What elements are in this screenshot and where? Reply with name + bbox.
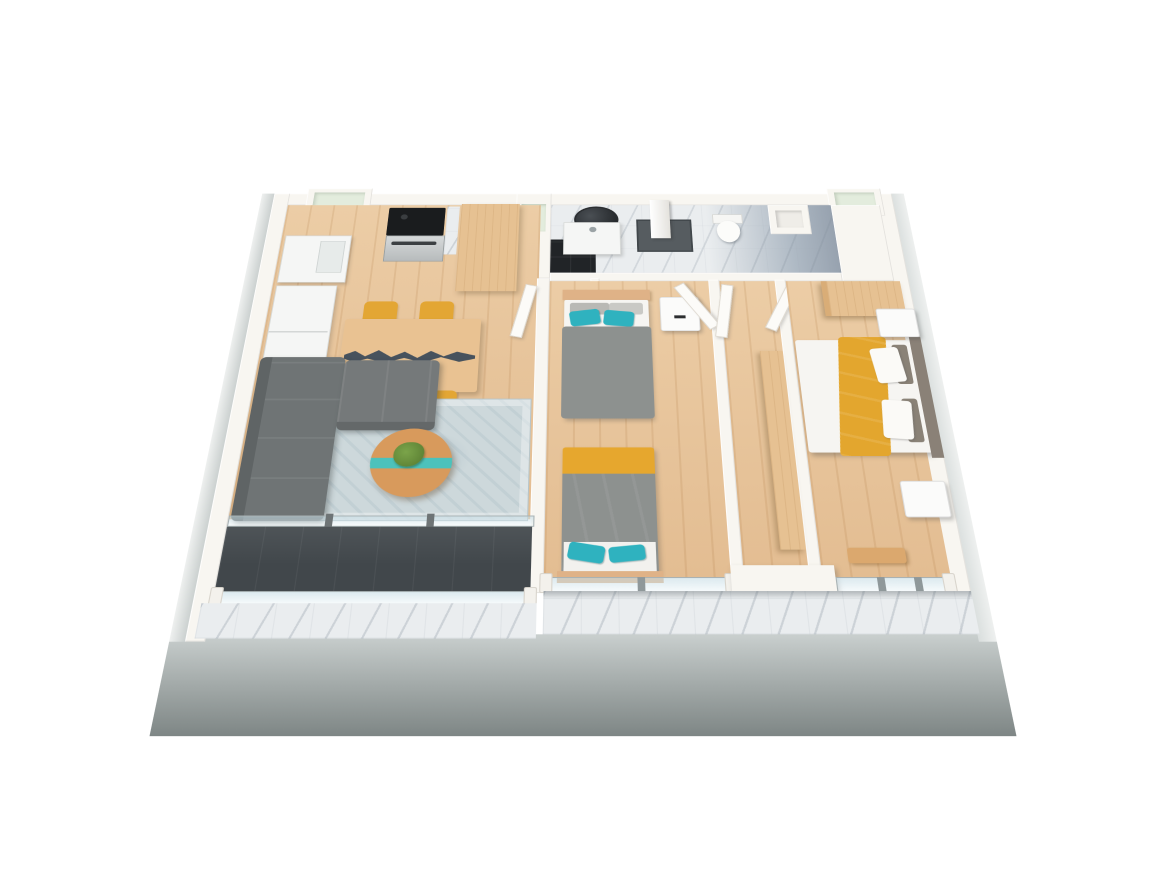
- master-pillow-white2: [881, 400, 914, 441]
- vanity-faucet: [589, 227, 596, 232]
- floorplan-canvas: [0, 0, 1170, 870]
- oven-handle: [391, 242, 436, 245]
- master-nightstand-top: [875, 309, 920, 337]
- sink-vanity: [563, 223, 621, 255]
- bathroom-duct-shaft: [767, 206, 812, 235]
- apartment-3d-plan: [146, 185, 1021, 743]
- sliding-glass-door: [227, 514, 533, 527]
- kids-bed1-pillow-teal2: [603, 310, 635, 327]
- kids-nightstand-handle: [674, 316, 685, 319]
- sliding-door-mullion2: [426, 514, 434, 527]
- master-bench: [847, 548, 907, 564]
- potted-plant: [392, 443, 425, 467]
- kitchen-sink-basin: [315, 241, 345, 273]
- outer-wall-face-bottom: [150, 635, 1017, 737]
- kids-bed1-duvet: [561, 327, 655, 419]
- balcony-floor: [215, 527, 532, 591]
- bathroom-floor: [550, 206, 841, 273]
- kids-bed2: [561, 448, 659, 576]
- kitchen-tall-cabinet: [455, 204, 520, 291]
- kids-window-mullion: [637, 577, 645, 591]
- kids-bed1-pillow-teal1: [569, 309, 601, 327]
- fridge: [262, 286, 337, 362]
- duct-opening: [775, 211, 804, 228]
- balcony-marble-ledge: [194, 604, 536, 639]
- stove-cooktop: [386, 208, 446, 236]
- oven-front: [383, 236, 445, 262]
- master-nightstand-bottom: [899, 481, 952, 518]
- kids-bed1: [563, 300, 653, 419]
- kids-bed1-headboard: [563, 290, 651, 300]
- corner-sofa-chaise: [336, 361, 440, 431]
- sill-shadow: [543, 591, 972, 599]
- shower-column: [650, 200, 671, 238]
- sliding-door-glass: [227, 516, 535, 527]
